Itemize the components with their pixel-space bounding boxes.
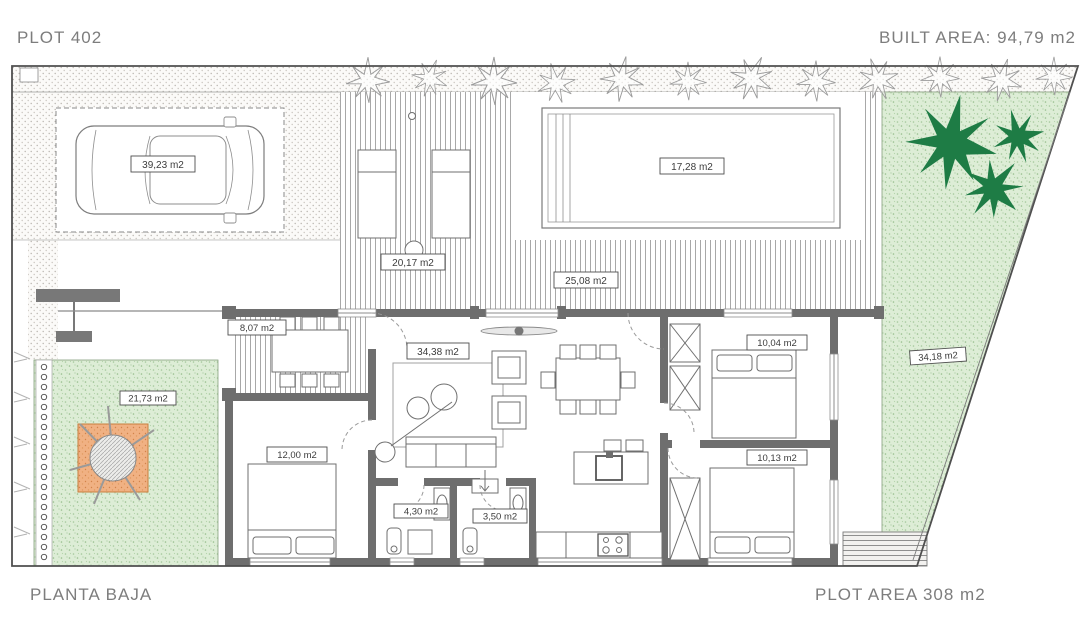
area-label-main-terrace: 25,08 m2 <box>554 272 618 288</box>
sofa <box>406 437 496 467</box>
porch-column <box>222 388 236 401</box>
armchair <box>492 351 526 384</box>
car-mirror <box>224 213 236 223</box>
svg-text:39,23 m2: 39,23 m2 <box>142 160 184 171</box>
window <box>724 309 792 317</box>
window <box>390 558 414 566</box>
armchair <box>492 396 526 429</box>
floor-plan-page: PLOT 402 BUILT AREA: 94,79 m2 PLANTA BAJ… <box>0 0 1092 631</box>
sliding-door <box>486 309 558 317</box>
area-label-living: 34,38 m2 <box>407 343 469 359</box>
window <box>538 558 662 566</box>
svg-text:21,73 m2: 21,73 m2 <box>128 394 168 405</box>
garden-steps <box>843 532 927 566</box>
area-label-bathroom-right: 3,50 m2 <box>473 509 527 523</box>
area-label-side-terrace: 20,17 m2 <box>381 254 445 270</box>
bed-left <box>248 464 336 558</box>
svg-text:10,04 m2: 10,04 m2 <box>757 338 797 349</box>
svg-text:8,07 m2: 8,07 m2 <box>240 323 274 334</box>
bed-bottom-right <box>710 468 794 558</box>
bar-stool <box>626 440 643 451</box>
area-label-bedroom-left: 12,00 m2 <box>267 447 327 462</box>
window <box>460 558 484 566</box>
island-sink <box>596 456 622 480</box>
toilet <box>387 528 401 554</box>
bed-top-right <box>712 350 796 438</box>
area-label-bedroom-top-right: 10,04 m2 <box>747 335 807 350</box>
pool-side-strip <box>862 92 880 240</box>
area-label-carport: 39,23 m2 <box>131 156 195 172</box>
car-mirror <box>224 117 236 127</box>
area-label-porch: 8,07 m2 <box>228 320 286 335</box>
window <box>708 558 792 566</box>
wardrobe <box>670 366 700 410</box>
area-label-bedroom-bottom-right: 10,13 m2 <box>747 450 807 465</box>
svg-text:20,17 m2: 20,17 m2 <box>392 258 434 269</box>
right-garden <box>882 92 1070 566</box>
coffee-table <box>431 384 457 410</box>
svg-text:17,28 m2: 17,28 m2 <box>671 162 713 173</box>
ceiling-fan <box>481 327 557 336</box>
boundary-grass <box>14 352 30 537</box>
svg-text:10,13 m2: 10,13 m2 <box>757 453 797 464</box>
window <box>830 480 838 544</box>
window <box>250 558 330 566</box>
area-label-garden-left: 21,73 m2 <box>120 391 176 405</box>
coffee-table <box>407 397 429 419</box>
garden-wall-post <box>874 306 884 319</box>
area-label-pool: 17,28 m2 <box>660 158 724 174</box>
svg-text:4,30 m2: 4,30 m2 <box>404 507 438 518</box>
floor-plan-canvas: 39,23 m2 17,28 m2 20,17 m2 25,08 m2 8,07… <box>0 0 1092 631</box>
svg-text:3,50 m2: 3,50 m2 <box>483 512 517 523</box>
left-gravel-strip <box>28 92 58 360</box>
shower-tray <box>408 530 432 554</box>
wardrobe <box>670 324 700 362</box>
area-label-bathroom-left: 4,30 m2 <box>394 504 448 518</box>
svg-text:25,08 m2: 25,08 m2 <box>565 276 607 287</box>
wardrobe <box>670 478 700 560</box>
svg-text:12,00 m2: 12,00 m2 <box>277 450 317 461</box>
toilet <box>463 528 477 554</box>
window <box>830 354 838 420</box>
kitchen-counter <box>536 532 662 558</box>
svg-text:34,38 m2: 34,38 m2 <box>417 347 459 358</box>
gate-notch <box>20 68 38 82</box>
door-post <box>470 306 479 319</box>
window <box>338 309 376 317</box>
porch-column <box>222 306 236 319</box>
bar-stool <box>604 440 621 451</box>
small-plant-pot <box>409 113 416 120</box>
